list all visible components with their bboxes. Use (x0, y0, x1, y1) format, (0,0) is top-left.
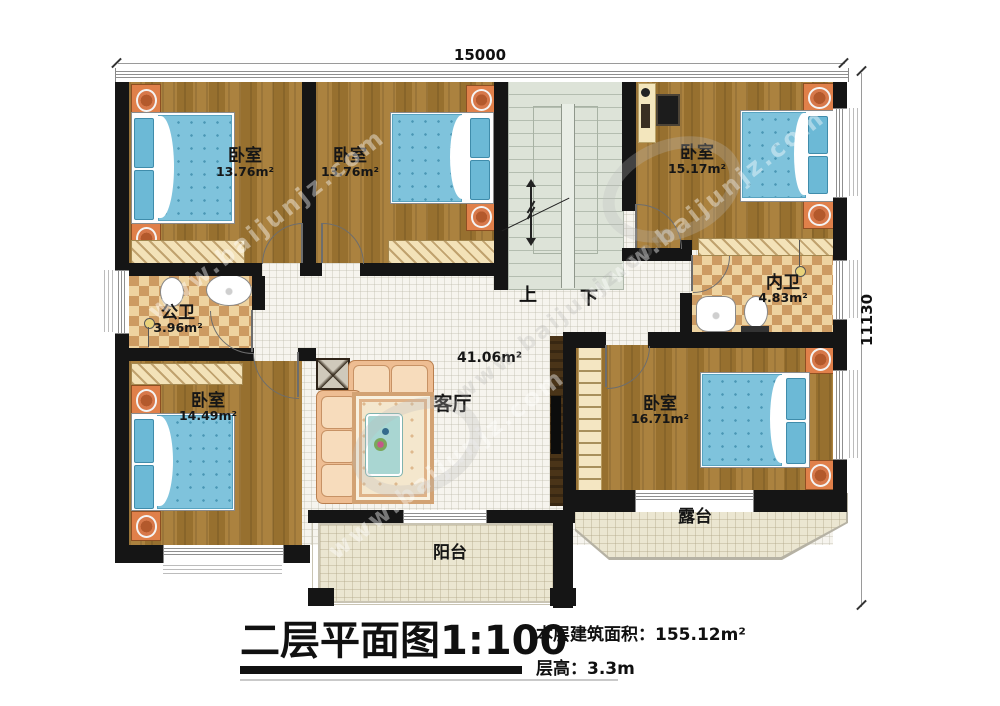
bedroom-br-wardrobe (578, 347, 602, 491)
pillow (786, 378, 806, 420)
table-decor (382, 428, 389, 435)
window-bedroom-br (833, 370, 847, 460)
balcony-sliding-door (403, 510, 487, 523)
bedroom-tm-wardrobe (388, 240, 496, 264)
wall-living-bedroom-br (563, 332, 576, 512)
door-leaf (297, 352, 299, 397)
tv (551, 396, 561, 454)
page-title: 二层平面图1:100 (240, 608, 567, 666)
door-leaf (605, 345, 607, 387)
dimension-width-label: 15000 (440, 46, 520, 64)
wall-bedroom-br-south (575, 490, 635, 512)
window-bedroom-tr (833, 108, 847, 198)
door-leaf (301, 223, 303, 263)
wall-bedrooms-top-south (300, 263, 322, 276)
floor-height-line: 层高：3.3m (536, 654, 635, 679)
wall-bedroom-tm-stairs (494, 81, 508, 290)
pillow (808, 156, 828, 194)
nightstand (803, 200, 835, 229)
arrow-up-head (526, 179, 536, 187)
desk-lamp (641, 88, 650, 97)
floor-plan-page: 15000 11130 (0, 0, 1000, 706)
door-leaf (321, 223, 323, 263)
bedroom-br-area: 16.71m² (610, 412, 710, 426)
corner-table (316, 358, 350, 390)
wall-living-south (308, 510, 403, 523)
door-leaf (635, 204, 637, 248)
window-inner-bath (833, 260, 847, 320)
wall-inner-bath-left (680, 293, 692, 332)
bedroom-tl-name: 卧室 (195, 147, 295, 166)
pillow (134, 419, 154, 463)
window-sill (849, 260, 858, 318)
door-leaf (691, 255, 693, 291)
nightstand (131, 385, 161, 415)
dimension-height-label: 11130 (858, 285, 874, 355)
stairs-up-label: 上 (519, 281, 537, 307)
inner-bath-area: 4.83m² (733, 291, 833, 305)
bed-sheet (450, 115, 470, 199)
wall-bedroom-bl-north (115, 348, 254, 361)
pillow (470, 160, 490, 200)
bedroom-bl-wardrobe (131, 363, 243, 385)
building-area-value: 155.12m² (655, 625, 746, 645)
living-room-area: 41.06m² (442, 351, 537, 366)
sofa-cushion (321, 464, 356, 497)
pillow (134, 170, 154, 220)
balcony-floor (318, 523, 560, 603)
sink (696, 296, 736, 332)
stair-stringer (561, 104, 575, 288)
window-sill (163, 565, 282, 575)
bedroom-tm-name: 卧室 (300, 147, 400, 166)
living-room-name: 客厅 (405, 394, 500, 415)
door-leaf (251, 310, 253, 352)
sofa-cushion (321, 396, 356, 429)
bedroom-tr-area: 15.17m² (647, 162, 747, 176)
table-flowers (374, 438, 387, 451)
balcony-pillar (308, 588, 334, 606)
window-sill (849, 108, 858, 196)
nightstand (466, 202, 496, 231)
inner-bath-closet (698, 238, 835, 256)
balcony-pillar (550, 588, 576, 606)
terrace-name: 露台 (645, 508, 745, 527)
floor-height-label: 层高： (536, 659, 587, 679)
window-band-top (115, 68, 849, 82)
wall-public-bath-right (252, 276, 265, 310)
wall-bedrooms-top-south (360, 263, 508, 276)
pillow (786, 422, 806, 464)
window-sill (104, 270, 114, 332)
computer-monitor (656, 94, 680, 126)
building-area-label: 本层建筑面积： (536, 625, 655, 645)
wall-bedroom-bl-north (298, 348, 316, 361)
nightstand (803, 83, 835, 112)
title-underline (240, 666, 522, 674)
wall-bedroom-br-south (752, 490, 833, 512)
sofa-cushion (321, 430, 356, 463)
window-bedroom-bl (163, 545, 284, 563)
pillow (134, 118, 154, 168)
light-cord (799, 240, 800, 268)
balcony-name: 阳台 (400, 544, 500, 563)
wall-bedrooms-top-south (115, 263, 262, 276)
wall-stairs-bedroom-tr (622, 81, 636, 211)
pillow (808, 116, 828, 154)
window-sill (849, 370, 858, 458)
desk-item (641, 104, 650, 128)
building-area-line: 本层建筑面积：155.12m² (536, 620, 746, 645)
public-bath-area: 3.96m² (128, 321, 228, 335)
title-underline-thin (240, 679, 618, 681)
bedroom-tm-area: 13.76m² (300, 165, 400, 179)
nightstand (131, 511, 161, 541)
stairs-down-label: 下 (580, 284, 598, 310)
floor-height-value: 3.3m (587, 659, 635, 679)
pillow (134, 465, 154, 509)
bedroom-bl-area: 14.49m² (158, 409, 258, 423)
wall-bedroom-br-north (648, 332, 833, 348)
window-public-bath (115, 270, 129, 334)
bedroom-tr-name: 卧室 (647, 144, 747, 163)
arrow-down-head (526, 238, 536, 246)
nightstand (466, 85, 496, 114)
bedroom-tl-wardrobe (131, 240, 245, 264)
bedroom-tl-area: 13.76m² (195, 165, 295, 179)
sink (206, 274, 252, 306)
pillow (470, 118, 490, 158)
nightstand (805, 344, 835, 374)
